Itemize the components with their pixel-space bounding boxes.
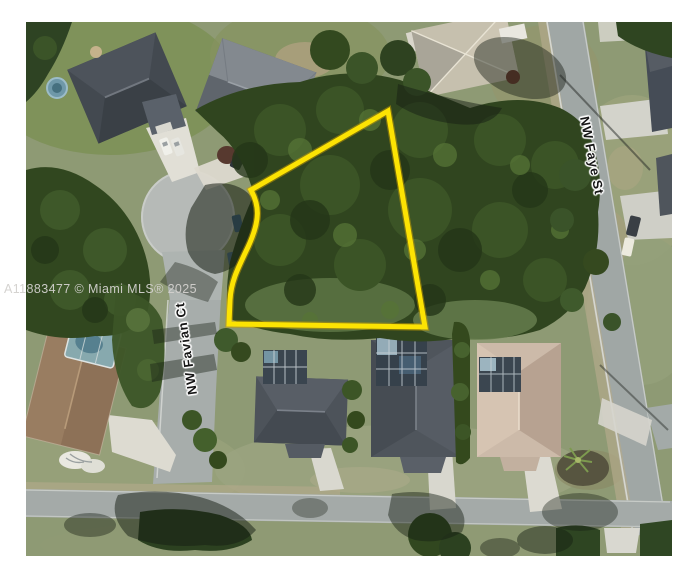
listing-photo: NW Favian Ct NW Faye St A11883477 © Miam… xyxy=(0,0,694,580)
watermark: A11883477 © Miami MLS® 2025 xyxy=(4,282,197,296)
